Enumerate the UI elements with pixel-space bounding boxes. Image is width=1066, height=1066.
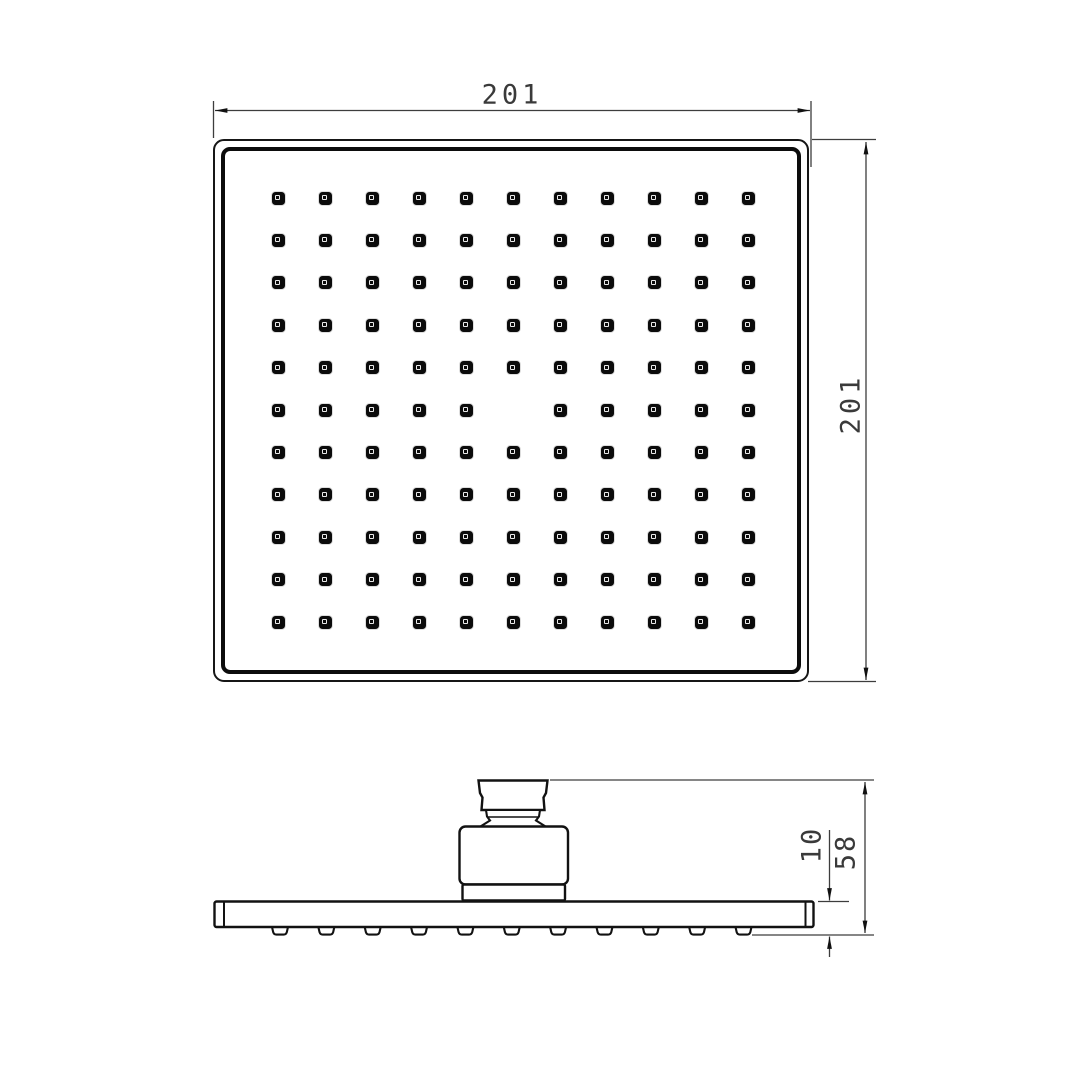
connector-base-flange	[463, 885, 566, 901]
connector-neck	[481, 810, 546, 827]
dimension-and-profile-linework	[0, 0, 1066, 1066]
connector-nut	[479, 781, 548, 811]
connector-body	[460, 827, 569, 885]
side-view	[215, 781, 814, 935]
technical-drawing: 201 201 58 10	[0, 0, 1066, 1066]
face-plate	[215, 902, 814, 928]
